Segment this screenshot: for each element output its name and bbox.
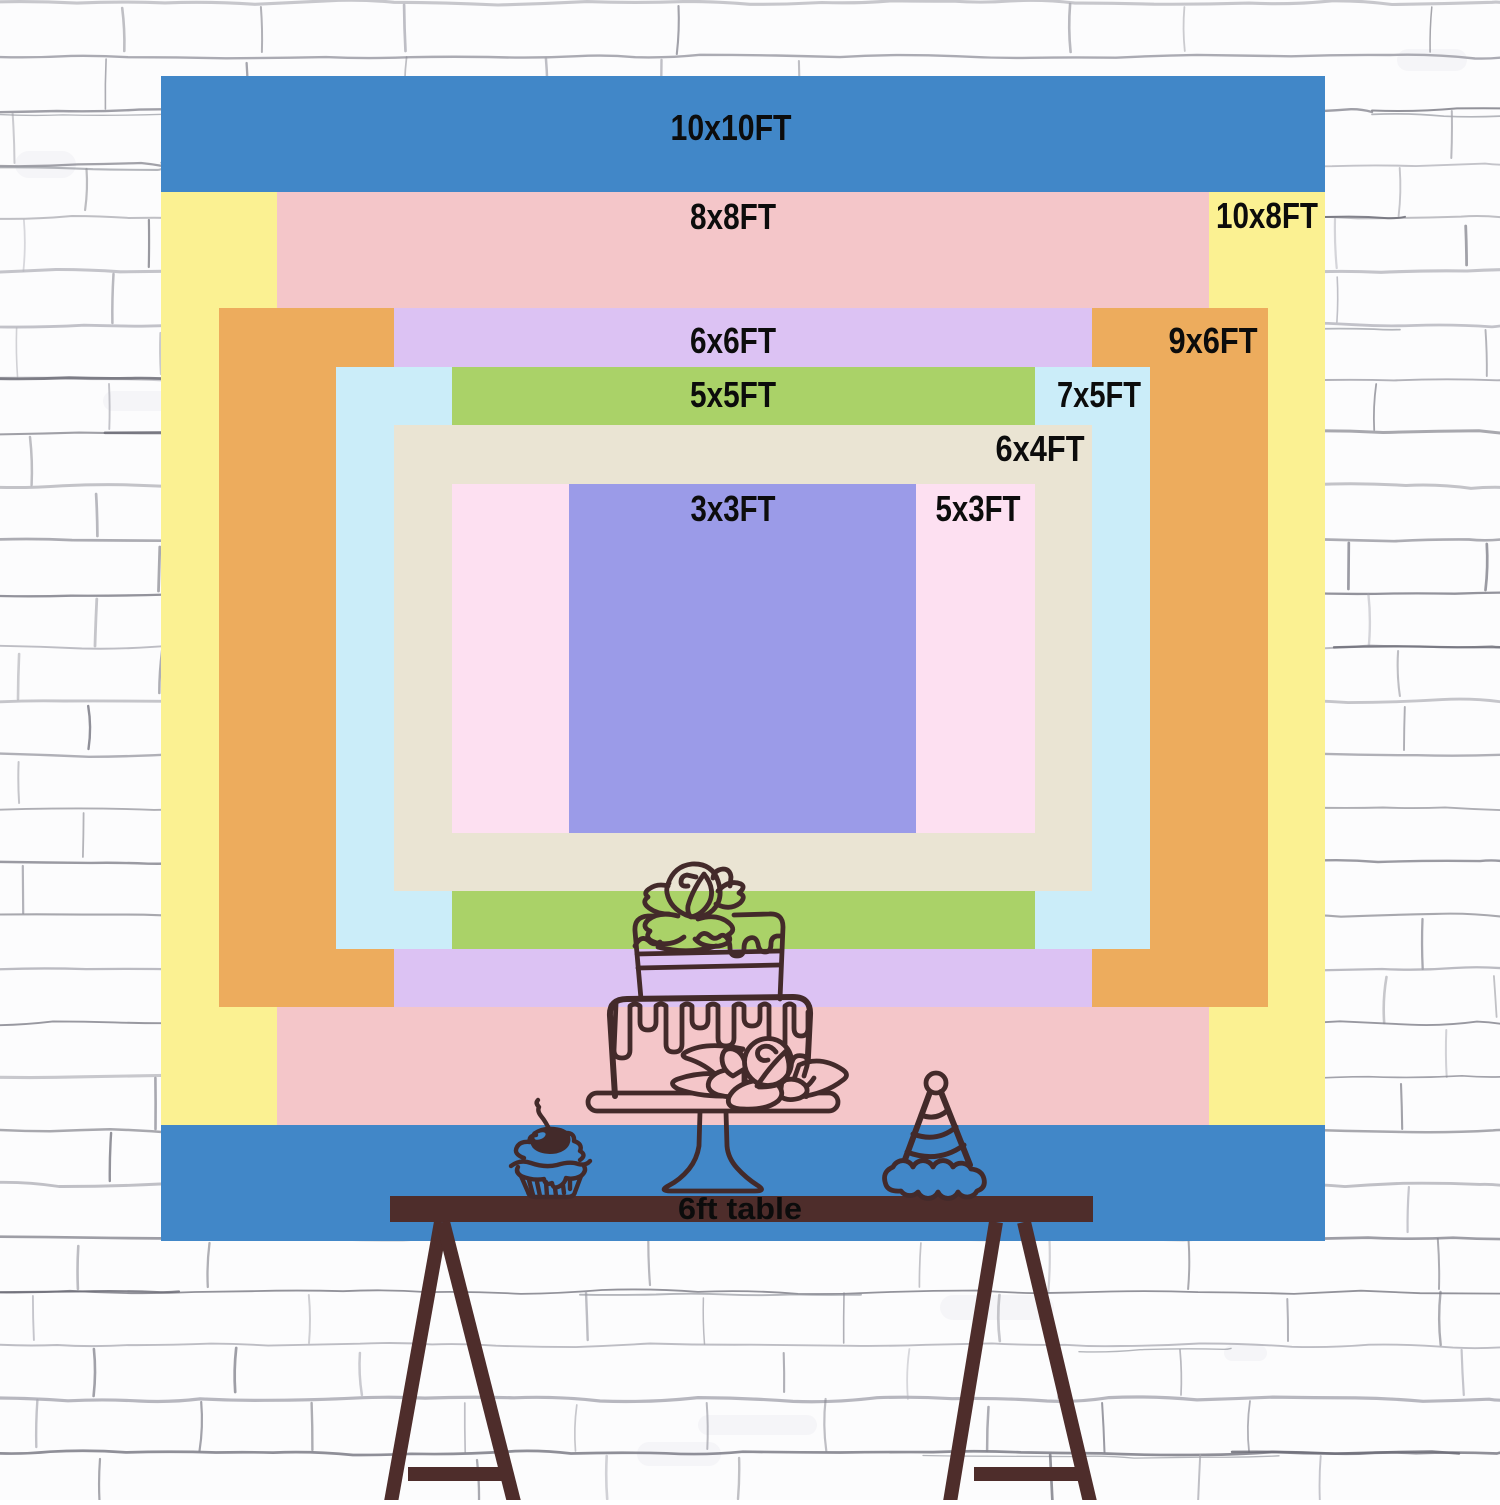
svg-text:8x8FT: 8x8FT xyxy=(690,196,776,237)
svg-text:10x8FT: 10x8FT xyxy=(1216,195,1318,236)
svg-text:9x6FT: 9x6FT xyxy=(1169,320,1258,361)
svg-text:7x5FT: 7x5FT xyxy=(1057,374,1141,415)
svg-text:3x3FT: 3x3FT xyxy=(691,488,776,529)
svg-text:10x10FT: 10x10FT xyxy=(671,107,792,148)
svg-text:5x3FT: 5x3FT xyxy=(936,488,1021,529)
svg-text:6ft table: 6ft table xyxy=(678,1191,802,1226)
svg-text:6x6FT: 6x6FT xyxy=(690,320,776,361)
svg-text:6x4FT: 6x4FT xyxy=(996,428,1085,469)
svg-text:5x5FT: 5x5FT xyxy=(690,374,776,415)
